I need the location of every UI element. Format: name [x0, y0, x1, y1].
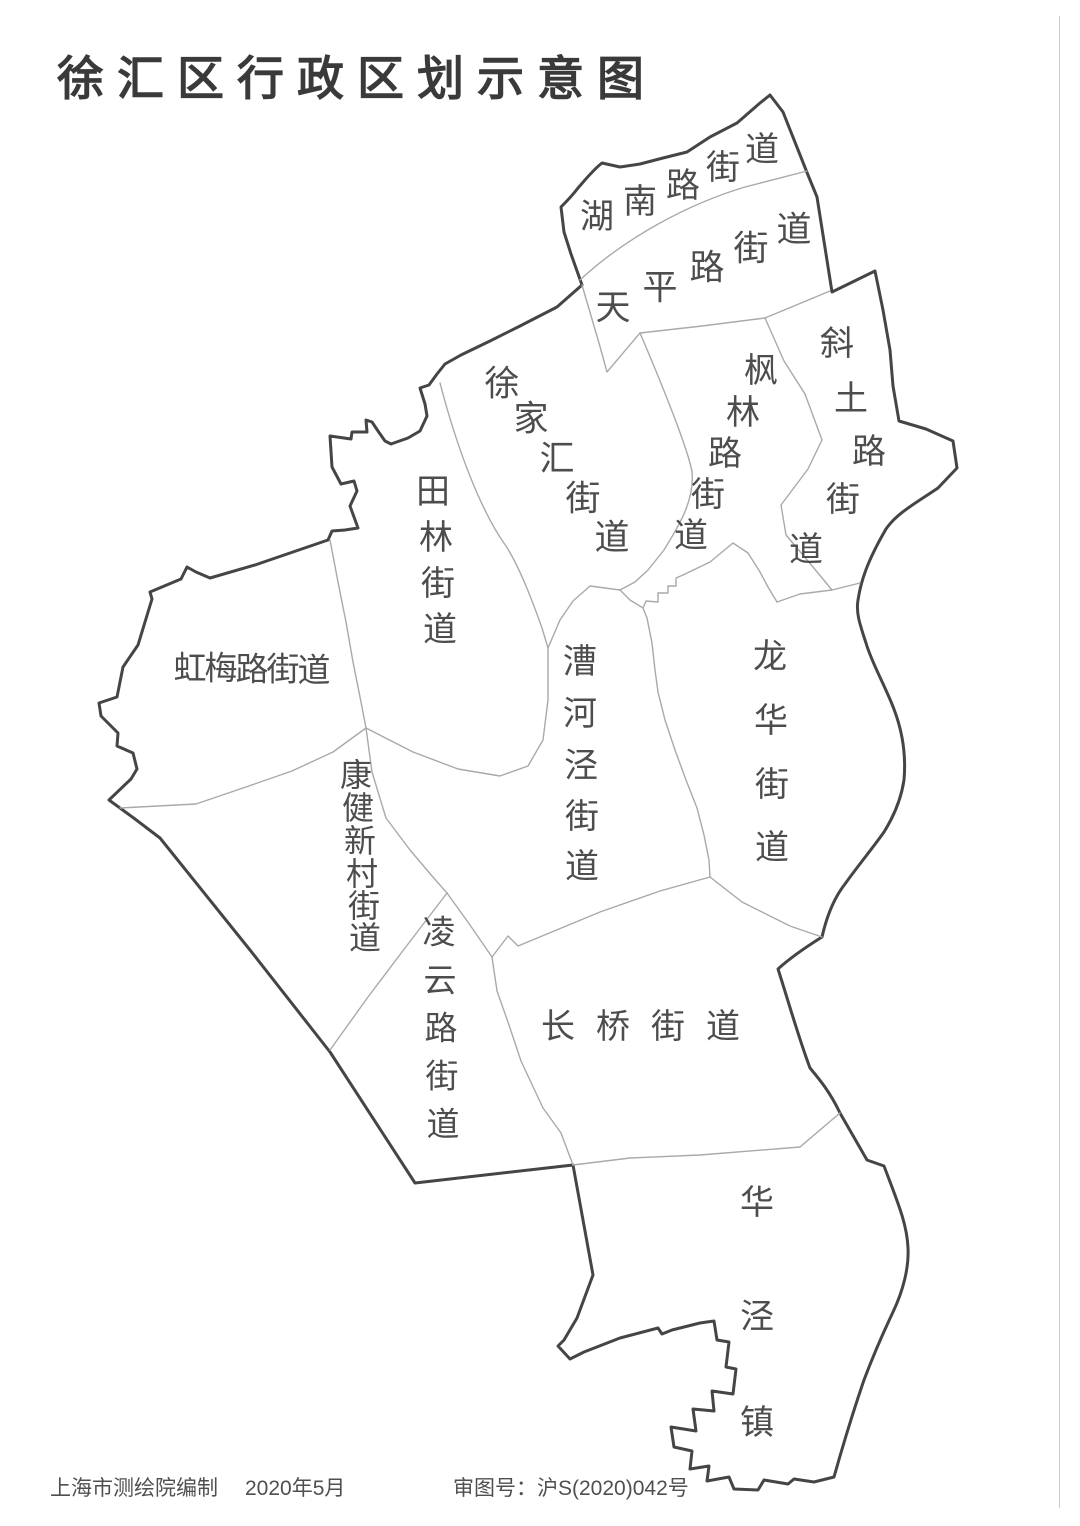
region-label-hunan-road-char: 湖	[580, 198, 614, 236]
region-label-changqiao-char: 街	[651, 1008, 685, 1046]
boundary-kangjian-caohejing	[366, 728, 447, 893]
region-label-xujiahui: 徐家汇街道	[484, 365, 629, 558]
region-label-kangjian-xincun-char: 道	[349, 920, 381, 956]
region-label-xujiahui-char: 汇	[539, 440, 574, 479]
region-label-fenglin-road: 枫林路街道	[674, 352, 778, 555]
region-label-tianlin-char: 街	[421, 565, 455, 603]
region-label-kangjian-xincun: 康健新村街道	[340, 757, 381, 956]
region-label-kangjian-xincun-char: 街	[348, 888, 380, 924]
region-label-xujiahui-char: 徐	[484, 365, 519, 404]
region-label-changqiao: 长桥街道	[541, 1008, 740, 1046]
region-label-tianping-road-char: 天	[595, 289, 630, 328]
footer-date: 2020年5月	[245, 1472, 345, 1502]
boundary-lingyun-changqiao	[492, 957, 573, 1165]
region-label-hunan-road: 湖南路街道	[580, 131, 779, 236]
boundary-longhua-changqiao	[710, 877, 822, 937]
footer-approval-number: 审图号：沪S(2020)042号	[453, 1472, 689, 1502]
region-label-tianping-road: 天平路街道	[595, 211, 811, 328]
region-label-longhua-char: 龙	[753, 638, 787, 676]
boundary-caohejing-longhua	[643, 608, 710, 877]
region-label-tianping-road-char: 路	[689, 249, 724, 288]
region-label-tianlin-char: 田	[416, 473, 450, 511]
boundary-hongmei-kangjian	[120, 728, 366, 808]
region-label-tianping-road-char: 街	[733, 230, 768, 269]
region-label-huajing-town-char: 镇	[740, 1404, 774, 1442]
region-label-lingyun-road-char: 路	[425, 1010, 458, 1047]
region-label-huajing-town: 华泾镇	[740, 1184, 774, 1442]
boundary-neck-staircase	[620, 575, 683, 608]
boundary-changqiao-huajing	[573, 1113, 840, 1165]
footer: 上海市测绘院编制 2020年5月 审图号：沪S(2020)042号	[0, 1472, 1080, 1502]
boundary-caohejing-changqiao	[492, 877, 710, 957]
region-label-fenglin-road-char: 枫	[744, 352, 778, 390]
region-label-tianping-road-char: 平	[642, 269, 677, 308]
region-label-xietu-road-char: 土	[834, 380, 868, 418]
region-label-caohejing: 漕河泾街道	[563, 643, 599, 886]
region-label-changqiao-char: 桥	[596, 1008, 630, 1046]
region-label-hongmei-road-char: 街	[267, 651, 300, 688]
region-label-longhua-char: 街	[755, 766, 789, 804]
region-label-fenglin-road-char: 林	[726, 394, 760, 432]
region-label-hongmei-road-char: 虹	[174, 650, 207, 687]
region-label-lingyun-road-char: 云	[424, 962, 457, 999]
region-label-hunan-road-char: 街	[706, 149, 740, 187]
region-label-hongmei-road: 虹梅路街道	[174, 650, 331, 689]
region-label-caohejing-char: 街	[565, 798, 599, 836]
region-label-xietu-road-char: 道	[789, 531, 823, 569]
region-label-kangjian-xincun-char: 健	[342, 790, 374, 826]
region-label-lingyun-road-char: 凌	[423, 914, 456, 951]
boundary-tianlin-caohejing	[366, 648, 548, 776]
region-label-tianlin-char: 林	[419, 519, 453, 557]
region-label-caohejing-char: 道	[565, 848, 599, 886]
footer-credit: 上海市测绘院编制	[50, 1472, 218, 1502]
region-label-xujiahui-char: 道	[594, 519, 629, 558]
region-label-changqiao-char: 长	[541, 1008, 575, 1046]
region-label-huajing-town-char: 华	[740, 1184, 774, 1222]
region-label-caohejing-char: 漕	[563, 643, 597, 681]
boundary-tianlin-west	[330, 540, 366, 728]
boundary-xujiahui-caohejing	[548, 586, 620, 648]
region-label-lingyun-road: 凌云路街道	[423, 914, 460, 1143]
region-label-xujiahui-char: 街	[565, 480, 600, 519]
region-label-huajing-town-char: 泾	[740, 1298, 774, 1336]
region-label-hongmei-road-char: 梅	[205, 650, 238, 687]
region-label-caohejing-char: 泾	[564, 747, 598, 785]
region-label-tianlin-char: 道	[423, 611, 457, 649]
region-label-lingyun-road-char: 街	[426, 1058, 459, 1095]
region-label-fenglin-road-char: 道	[674, 517, 708, 555]
map-neatline	[1059, 16, 1060, 1508]
region-label-hunan-road-char: 路	[666, 167, 700, 205]
region-label-hunan-road-char: 南	[623, 183, 657, 221]
region-label-xietu-road-char: 街	[826, 481, 860, 519]
region-label-xietu-road: 斜土路街道	[789, 325, 886, 569]
region-label-fenglin-road-char: 路	[708, 435, 742, 473]
region-label-longhua-char: 华	[754, 702, 788, 740]
region-label-xietu-road-char: 路	[852, 433, 886, 471]
region-label-xietu-road-char: 斜	[820, 325, 854, 363]
district-map: 湖南路街道天平路街道徐家汇街道枫林路街道斜土路街道田林街道虹梅路街道漕河泾街道龙…	[0, 0, 1080, 1526]
region-label-kangjian-xincun-char: 村	[346, 856, 378, 892]
region-label-tianping-road-char: 道	[776, 211, 811, 250]
region-label-lingyun-road-char: 道	[427, 1106, 460, 1143]
region-label-caohejing-char: 河	[563, 695, 597, 733]
region-label-hongmei-road-char: 道	[298, 652, 331, 689]
boundary-xietu-longhua	[777, 583, 860, 602]
region-label-longhua-char: 道	[755, 829, 789, 867]
region-label-kangjian-xincun-char: 新	[344, 823, 376, 859]
region-label-hongmei-road-char: 路	[236, 651, 269, 688]
region-label-changqiao-char: 道	[706, 1008, 740, 1046]
region-label-longhua: 龙华街道	[753, 638, 789, 867]
region-label-fenglin-road-char: 街	[691, 476, 725, 514]
region-label-kangjian-xincun-char: 康	[340, 757, 372, 793]
region-label-tianlin: 田林街道	[416, 473, 457, 649]
region-label-hunan-road-char: 道	[745, 131, 779, 169]
region-label-xujiahui-char: 家	[513, 400, 548, 439]
